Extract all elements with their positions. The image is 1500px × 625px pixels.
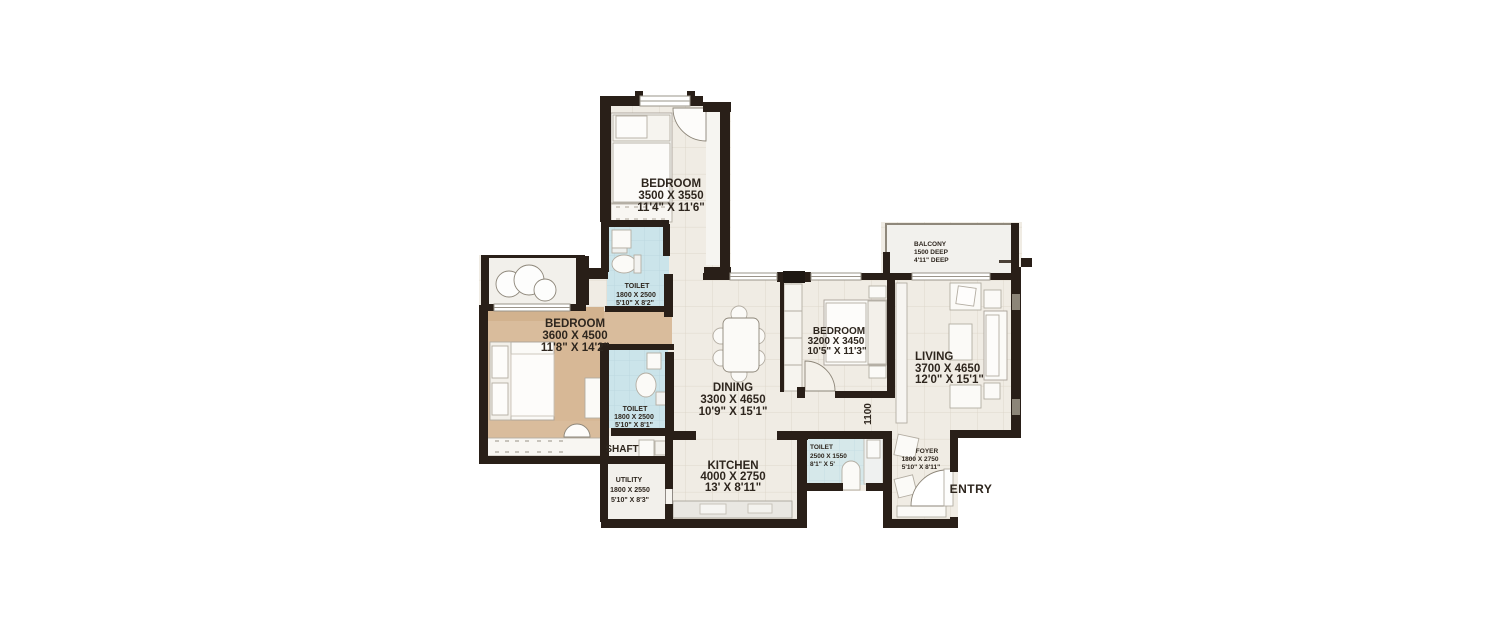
svg-text:5'10" X 8'1": 5'10" X 8'1" [615,422,653,429]
svg-text:10'5" X 11'3": 10'5" X 11'3" [807,346,867,357]
svg-text:8'1" X 5': 8'1" X 5' [810,461,835,468]
svg-text:SHAFT: SHAFT [605,444,638,455]
svg-text:ENTRY: ENTRY [950,482,993,496]
svg-text:BEDROOM: BEDROOM [641,178,701,190]
svg-text:LIVING: LIVING [915,351,953,363]
svg-text:3500 X 3550: 3500 X 3550 [638,190,703,202]
svg-text:3300 X 4650: 3300 X 4650 [700,394,765,406]
svg-text:10'9" X 15'1": 10'9" X 15'1" [699,406,768,418]
svg-text:4'11" DEEP: 4'11" DEEP [914,257,949,264]
svg-text:TOILET: TOILET [810,444,833,451]
svg-text:UTILITY: UTILITY [616,477,643,484]
svg-text:1800 X 2500: 1800 X 2500 [616,292,656,299]
svg-text:TOILET: TOILET [625,283,650,290]
svg-text:1500 DEEP: 1500 DEEP [914,249,949,256]
svg-text:3600 X 4500: 3600 X 4500 [542,330,607,342]
svg-text:11'4" X 11'6": 11'4" X 11'6" [637,202,705,214]
svg-text:2500 X 1550: 2500 X 1550 [810,453,847,460]
svg-text:11'8" X 14'2": 11'8" X 14'2" [541,342,609,354]
svg-text:TOILET: TOILET [623,406,648,413]
svg-text:FOYER: FOYER [916,448,939,455]
svg-text:13' X 8'11": 13' X 8'11" [705,482,761,494]
svg-text:5'10" X 8'3": 5'10" X 8'3" [611,497,649,504]
svg-text:BALCONY: BALCONY [914,241,947,248]
svg-text:1800 X 2500: 1800 X 2500 [614,414,654,421]
svg-text:DINING: DINING [713,382,753,394]
svg-text:12'0" X 15'1": 12'0" X 15'1" [915,374,984,386]
svg-text:1100: 1100 [863,403,874,425]
svg-text:5'10" X 8'2": 5'10" X 8'2" [616,300,654,307]
svg-text:1800 X 2750: 1800 X 2750 [902,456,939,463]
svg-text:BEDROOM: BEDROOM [545,318,605,330]
svg-text:5'10" X 8'11": 5'10" X 8'11" [902,464,941,471]
svg-text:1800 X 2550: 1800 X 2550 [610,487,650,494]
